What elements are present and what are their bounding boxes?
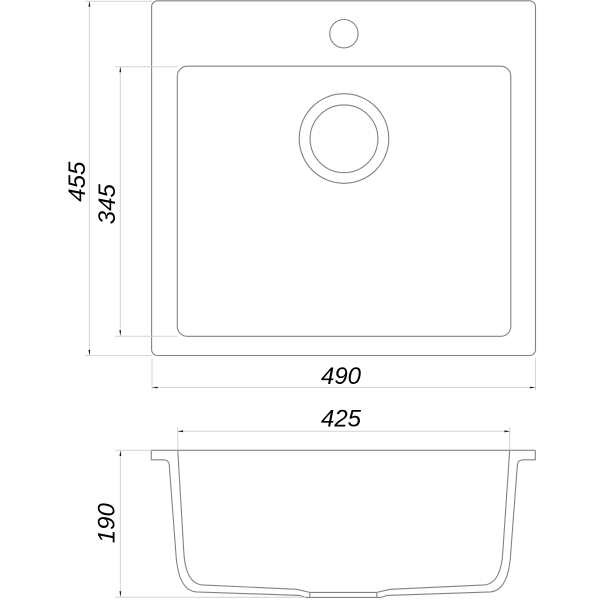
svg-text:345: 345 [94,184,121,225]
svg-text:490: 490 [321,363,362,390]
svg-text:425: 425 [321,406,362,433]
svg-text:190: 190 [94,503,121,544]
svg-text:455: 455 [64,161,91,202]
